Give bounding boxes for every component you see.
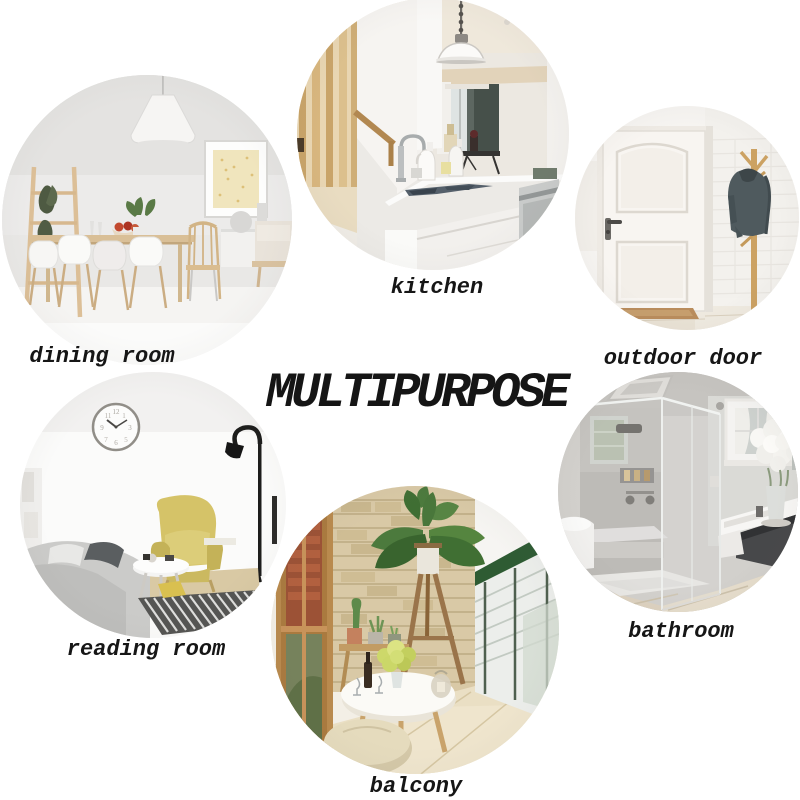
svg-text:5: 5 [124,436,128,444]
svg-text:9: 9 [100,424,104,432]
svg-text:6: 6 [114,439,118,447]
svg-text:7: 7 [104,436,108,444]
svg-text:3: 3 [128,424,132,432]
svg-text:1: 1 [122,412,126,420]
svg-text:11: 11 [105,412,112,420]
svg-text:12: 12 [113,408,121,416]
